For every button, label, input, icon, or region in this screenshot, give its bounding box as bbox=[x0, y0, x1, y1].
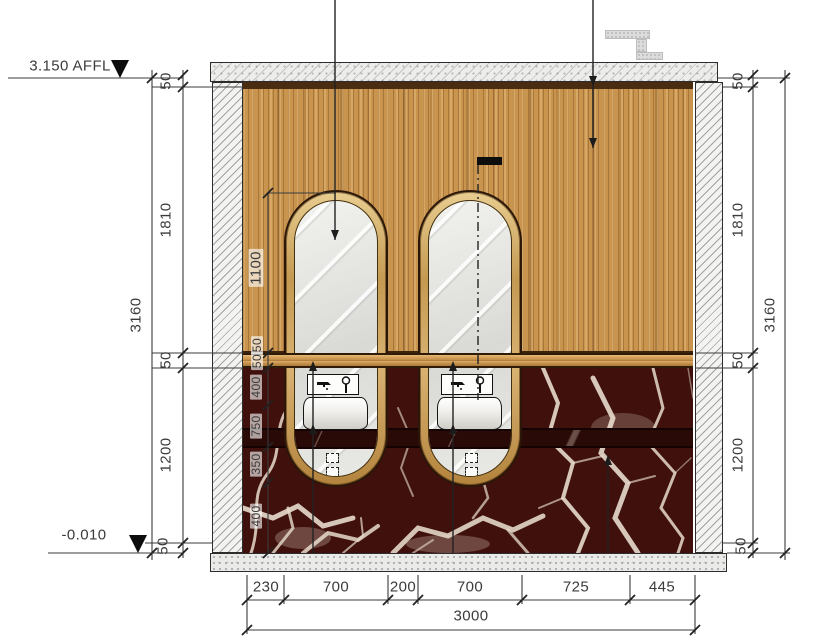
wall-section-left bbox=[212, 82, 243, 553]
basin-1 bbox=[303, 397, 368, 430]
drain-pipe-1-upper bbox=[326, 453, 339, 463]
faucet-spout-icon bbox=[315, 379, 335, 391]
dim-left-1200: 1200 bbox=[159, 438, 174, 473]
dim-bottom-700a: 700 bbox=[323, 580, 349, 595]
dim-right-50-top: 50 bbox=[731, 72, 746, 90]
dim-inner-350: 350 bbox=[250, 451, 262, 476]
dim-inner-400a: 400 bbox=[250, 374, 262, 399]
bathroom-elevation-drawing: 3.150 AFFL -0.010 50 1810 50 1200 50 316… bbox=[0, 0, 829, 640]
mirror-2-frame bbox=[418, 190, 522, 487]
faucet-panel-2 bbox=[441, 374, 493, 395]
wood-shelf bbox=[243, 353, 693, 368]
drain-pipe-2-upper bbox=[465, 453, 478, 463]
dim-left-50-mid: 50 bbox=[159, 351, 174, 369]
dim-bottom-725: 725 bbox=[563, 580, 589, 595]
level-label-top: 3.150 AFFL bbox=[29, 59, 111, 74]
dim-right-1200: 1200 bbox=[731, 438, 746, 473]
dim-right-50-mid: 50 bbox=[731, 351, 746, 369]
dim-right-total-3160: 3160 bbox=[763, 298, 778, 333]
mirror-1-glass bbox=[294, 200, 378, 477]
break-symbol-stem bbox=[636, 39, 647, 52]
dim-inner-750: 750 bbox=[250, 413, 262, 438]
level-triangle-top bbox=[111, 60, 129, 78]
dim-right-50-bottom: 50 bbox=[734, 537, 749, 555]
dim-inner-400b: 400 bbox=[250, 503, 262, 528]
level-triangle-bottom bbox=[129, 535, 147, 553]
dim-left-50-top: 50 bbox=[159, 72, 174, 90]
dim-left-1810: 1810 bbox=[159, 203, 174, 238]
dim-left-total-3160: 3160 bbox=[129, 298, 144, 333]
faucet-control-icon bbox=[341, 376, 351, 394]
drain-pipe-1-lower bbox=[326, 467, 339, 477]
countertop-through-mirror-2 bbox=[428, 429, 512, 449]
ceiling-slab bbox=[210, 62, 718, 82]
dim-bottom-230: 230 bbox=[253, 580, 279, 595]
dim-inner-1100: 1100 bbox=[249, 249, 264, 287]
dim-bottom-200: 200 bbox=[390, 580, 416, 595]
dim-left-50-bottom: 50 bbox=[156, 537, 171, 555]
mirror-2-glass bbox=[428, 200, 512, 477]
dim-bottom-445: 445 bbox=[649, 580, 675, 595]
break-symbol-top-bar bbox=[605, 30, 650, 39]
floor-slab bbox=[210, 553, 727, 572]
countertop-through-mirror-1 bbox=[294, 429, 378, 449]
faucet-control-icon bbox=[475, 376, 485, 394]
basin-2 bbox=[437, 397, 502, 430]
mirror-1-frame bbox=[284, 190, 388, 487]
faucet-panel-1 bbox=[307, 374, 359, 395]
dim-right-1810: 1810 bbox=[731, 203, 746, 238]
wall-section-right bbox=[695, 82, 723, 553]
faucet-spout-icon bbox=[449, 379, 469, 391]
level-label-bottom: -0.010 bbox=[62, 528, 107, 543]
dim-bottom-total-3000: 3000 bbox=[454, 609, 489, 624]
break-symbol-bottom-bar bbox=[636, 52, 663, 60]
drain-pipe-2-lower bbox=[465, 467, 478, 477]
dim-inner-50: 50 bbox=[251, 352, 263, 370]
dim-bottom-700b: 700 bbox=[457, 580, 483, 595]
